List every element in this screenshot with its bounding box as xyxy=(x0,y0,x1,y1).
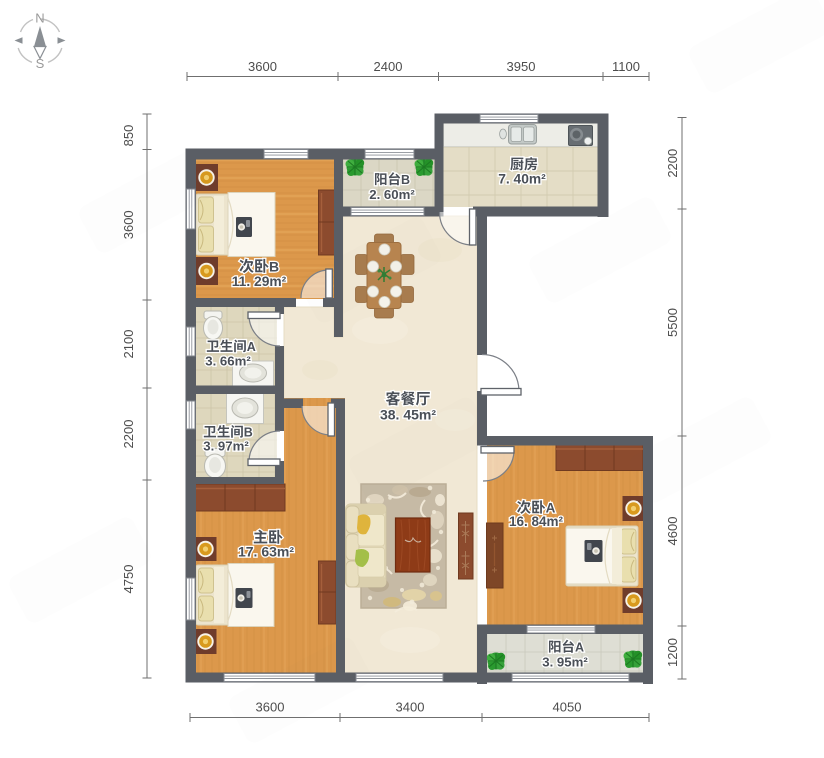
svg-text:2200: 2200 xyxy=(121,420,136,449)
svg-text:4050: 4050 xyxy=(553,700,582,715)
svg-text:2100: 2100 xyxy=(121,330,136,359)
svg-text:3. 95m²: 3. 95m² xyxy=(542,655,588,670)
svg-text:850: 850 xyxy=(121,125,136,147)
svg-text:N: N xyxy=(35,11,44,26)
svg-text:1200: 1200 xyxy=(665,638,680,667)
svg-text:5500: 5500 xyxy=(665,308,680,337)
svg-text:2200: 2200 xyxy=(665,149,680,178)
svg-text:B: B xyxy=(401,173,410,187)
svg-text:16. 84m²: 16. 84m² xyxy=(509,514,564,529)
svg-text:B: B xyxy=(269,259,279,275)
svg-text:3600: 3600 xyxy=(248,59,277,74)
svg-text:3400: 3400 xyxy=(396,700,425,715)
svg-text:A: A xyxy=(575,641,584,655)
svg-text:11. 29m²: 11. 29m² xyxy=(232,274,287,289)
svg-text:7. 40m²: 7. 40m² xyxy=(498,172,546,187)
svg-text:4600: 4600 xyxy=(665,517,680,546)
svg-text:2400: 2400 xyxy=(374,59,403,74)
svg-text:3950: 3950 xyxy=(507,59,536,74)
svg-text:1100: 1100 xyxy=(612,59,640,74)
svg-text:3. 97m²: 3. 97m² xyxy=(203,439,249,454)
svg-text:2. 60m²: 2. 60m² xyxy=(369,187,415,202)
svg-text:3. 66m²: 3. 66m² xyxy=(205,354,251,369)
svg-text:A: A xyxy=(247,340,256,354)
svg-text:B: B xyxy=(244,426,253,440)
svg-text:S: S xyxy=(36,56,45,71)
svg-text:17. 63m²: 17. 63m² xyxy=(238,544,294,560)
